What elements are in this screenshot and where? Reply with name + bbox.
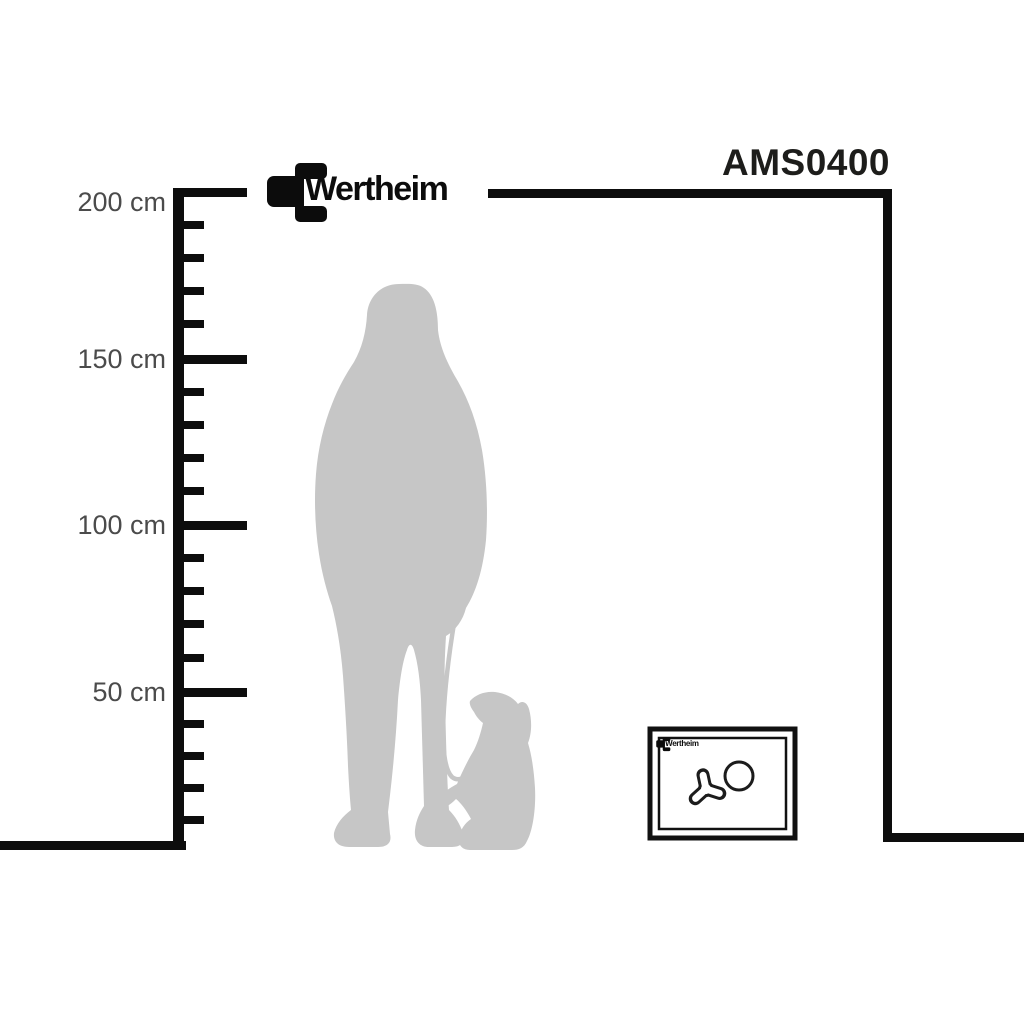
ruler-tick-minor	[173, 720, 204, 728]
ruler-tick-minor	[173, 487, 204, 495]
person-silhouette	[315, 284, 487, 847]
frame-top-line	[488, 189, 891, 198]
ruler-tick-minor	[173, 554, 204, 562]
frame-bottom-line-right	[883, 833, 1024, 842]
ruler-label-150cm: 150 cm	[40, 343, 166, 375]
ruler-tick-minor	[173, 221, 204, 229]
ruler-tick-major	[173, 521, 247, 530]
ruler-tick-minor	[173, 421, 204, 429]
ruler-tick-minor	[173, 454, 204, 462]
ruler-tick-minor	[173, 320, 204, 328]
ruler-tick-minor	[173, 816, 204, 824]
ruler-tick-minor	[173, 784, 204, 792]
size-comparison-diagram: 200 cm 150 cm 100 cm 50 cm Wertheim AMS0…	[0, 0, 1024, 1024]
product-model-label: AMS0400	[690, 143, 890, 183]
person-with-dog-silhouette	[300, 280, 550, 855]
frame-right-line	[883, 189, 892, 842]
ruler-tick-minor	[173, 287, 204, 295]
ruler-label-100cm: 100 cm	[40, 509, 166, 541]
ruler-tick-minor	[173, 620, 204, 628]
ruler-tick-minor	[173, 388, 204, 396]
ruler-label-50cm: 50 cm	[40, 676, 166, 708]
ruler-tick-major	[173, 188, 247, 197]
safe-dial-icon	[725, 762, 753, 790]
ruler-tick-minor	[173, 654, 204, 662]
ruler-tick-major	[173, 355, 247, 364]
logo-wordmark: Wertheim	[305, 170, 447, 209]
safe-brand-logo: Wertheim	[656, 737, 703, 752]
ruler-tick-major	[173, 688, 247, 697]
wertheim-logo: Wertheim	[266, 162, 466, 224]
ruler-tick-minor	[173, 254, 204, 262]
ruler-label-200cm: 200 cm	[40, 186, 166, 218]
ruler-tick-minor	[173, 752, 204, 760]
safe-logo-wordmark: Wertheim	[665, 739, 698, 748]
ground-line-left	[0, 841, 186, 850]
ruler-tick-minor	[173, 587, 204, 595]
